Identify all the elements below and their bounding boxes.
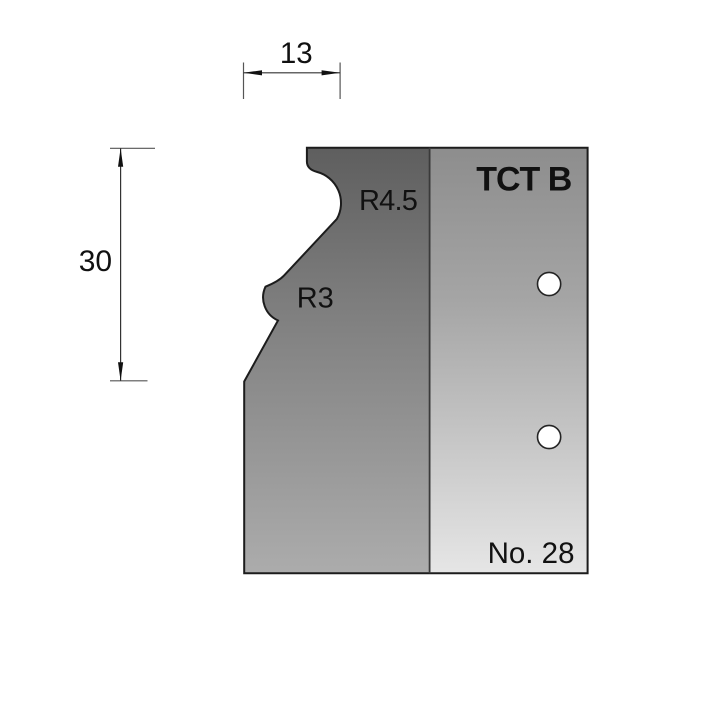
svg-text:R3: R3 xyxy=(297,283,334,315)
svg-text:No. 28: No. 28 xyxy=(488,537,575,570)
svg-text:30: 30 xyxy=(79,245,112,278)
svg-text:13: 13 xyxy=(280,37,313,70)
svg-text:TCT B: TCT B xyxy=(476,160,572,198)
svg-text:R4.5: R4.5 xyxy=(359,185,417,217)
